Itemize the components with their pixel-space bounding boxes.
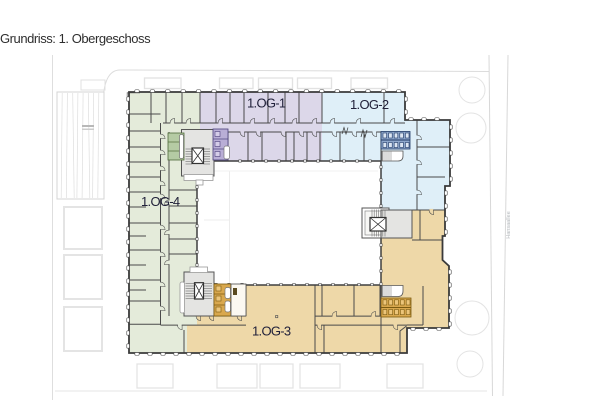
svg-text:Grundriss: 1. Obergeschoss: Grundriss: 1. Obergeschoss [0,31,151,46]
svg-text:1.OG-3: 1.OG-3 [252,324,291,339]
svg-text:1.OG-1: 1.OG-1 [247,96,286,111]
svg-text:Hansaallee: Hansaallee [506,211,512,239]
svg-text:1.OG-4: 1.OG-4 [141,194,180,209]
svg-text:1.OG-2: 1.OG-2 [350,97,389,112]
